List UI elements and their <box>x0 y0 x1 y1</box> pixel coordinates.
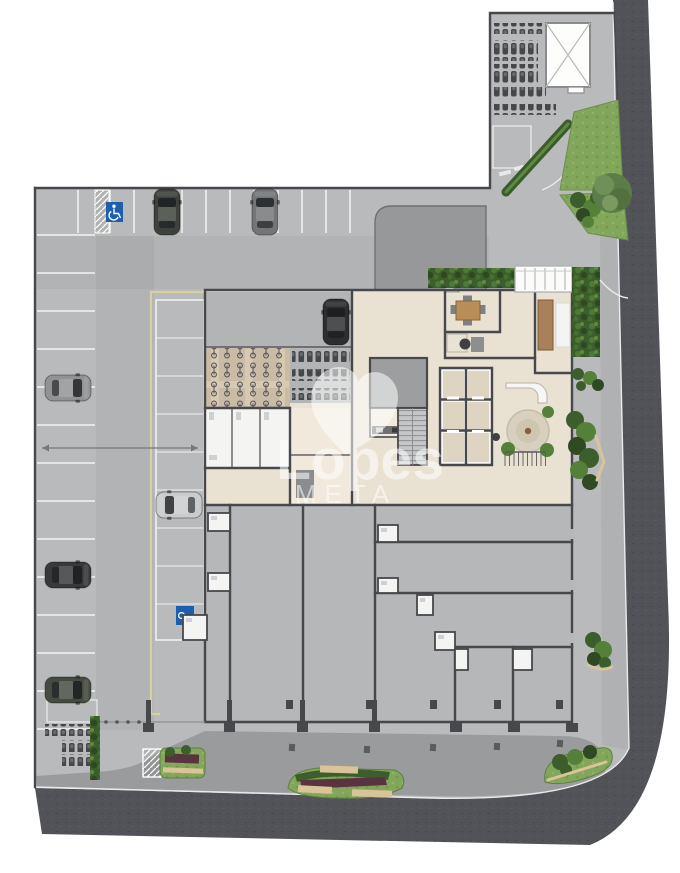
bench-mat <box>556 303 570 347</box>
elevator-bank <box>440 368 492 465</box>
hedge-strip <box>90 716 100 780</box>
transformer-pad <box>546 23 590 93</box>
planter-bed-center <box>288 765 404 798</box>
car-black <box>321 299 351 345</box>
accessible-parking-sign <box>106 202 123 222</box>
car-silver <box>156 490 202 520</box>
car-gray <box>250 189 280 235</box>
car-dark <box>45 560 91 590</box>
car-green <box>45 675 91 705</box>
planter-pot <box>540 443 554 457</box>
hatched-pad <box>143 749 161 777</box>
pergola <box>515 266 572 292</box>
building <box>183 266 628 722</box>
planter-bottom-left <box>160 745 205 778</box>
tree <box>592 173 632 213</box>
site-plan-image: Lopes META <box>0 0 680 873</box>
hedge-north <box>428 268 520 288</box>
bicycle-parking-area <box>205 347 290 408</box>
watermark-division: META <box>295 479 397 509</box>
planter-pot <box>542 406 554 418</box>
trash-bin <box>492 433 500 441</box>
site-plan-svg: Lopes META <box>0 0 680 873</box>
car-dark-green <box>152 189 182 235</box>
car-light-gray <box>45 373 91 403</box>
wardrobe <box>538 300 553 350</box>
desk <box>471 337 484 352</box>
hedge-east <box>572 267 600 357</box>
moto-row <box>45 724 95 736</box>
office-chair <box>460 339 471 350</box>
planter-pot <box>501 442 515 456</box>
